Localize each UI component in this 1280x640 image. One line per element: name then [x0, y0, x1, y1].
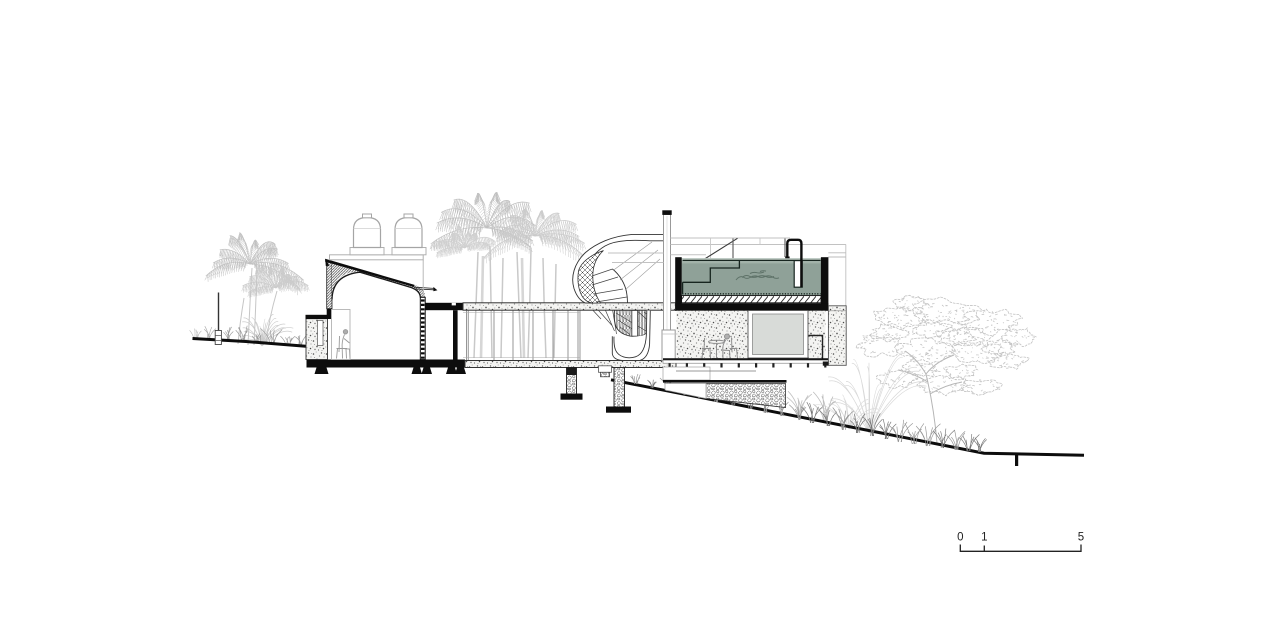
- svg-text:1: 1: [981, 532, 987, 544]
- svg-text:5: 5: [1078, 532, 1084, 544]
- svg-text:0: 0: [957, 532, 963, 544]
